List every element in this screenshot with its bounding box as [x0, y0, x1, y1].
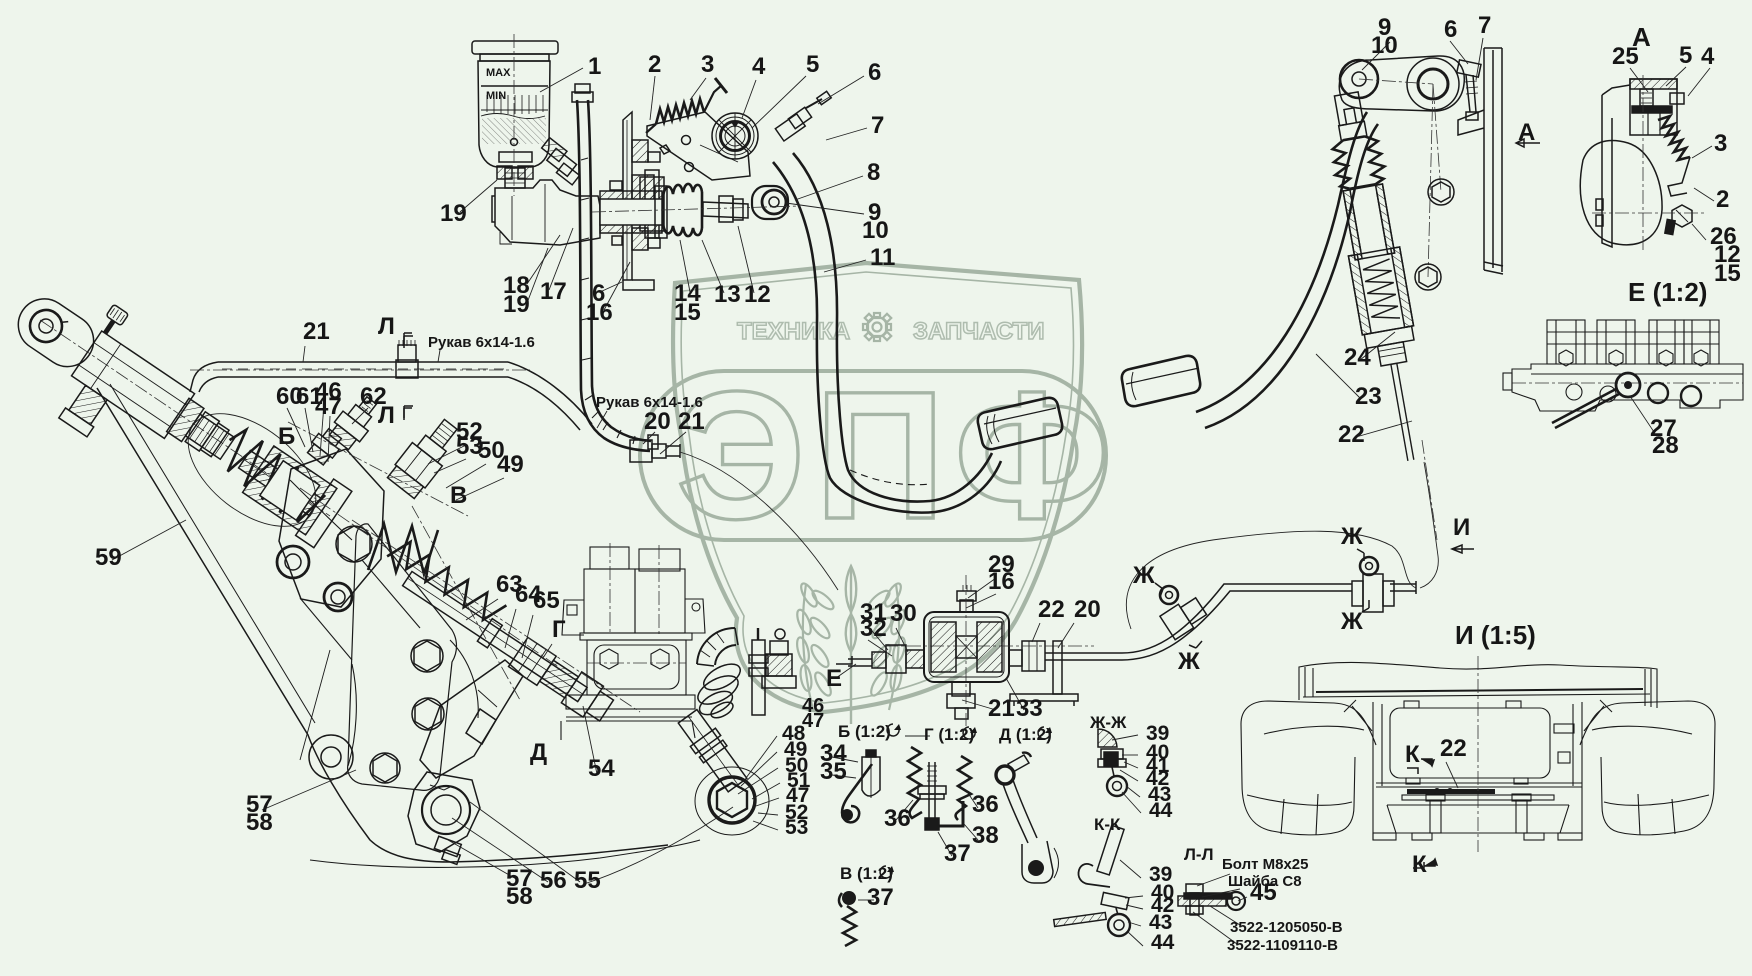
svg-text:28: 28 [1652, 432, 1679, 459]
svg-text:ТЕХНИКА: ТЕХНИКА [737, 318, 850, 345]
svg-text:MAX: MAX [486, 67, 511, 79]
svg-text:Ж: Ж [1340, 608, 1363, 635]
svg-text:22: 22 [1338, 421, 1365, 448]
svg-text:12: 12 [744, 281, 771, 308]
svg-text:49: 49 [497, 451, 524, 478]
svg-text:Е (1:2): Е (1:2) [1628, 277, 1707, 307]
svg-text:3522-1205050-В: 3522-1205050-В [1230, 919, 1343, 936]
svg-text:3: 3 [701, 51, 714, 78]
svg-text:И: И [1453, 514, 1470, 541]
svg-text:59: 59 [95, 544, 122, 571]
svg-text:Б (1:2): Б (1:2) [838, 722, 891, 741]
svg-text:65: 65 [533, 587, 560, 614]
svg-text:21: 21 [678, 408, 705, 435]
svg-text:37: 37 [867, 884, 894, 911]
svg-text:3: 3 [1714, 130, 1727, 157]
svg-text:6: 6 [1444, 16, 1457, 43]
svg-text:36: 36 [972, 791, 999, 818]
svg-text:15: 15 [1714, 260, 1741, 287]
svg-text:Ж: Ж [1177, 648, 1200, 675]
svg-text:13: 13 [714, 281, 741, 308]
svg-text:1: 1 [588, 53, 601, 80]
svg-text:К: К [1405, 741, 1420, 768]
svg-text:16: 16 [586, 299, 613, 326]
svg-text:21: 21 [303, 318, 330, 345]
svg-text:Г: Г [552, 616, 566, 643]
svg-text:7: 7 [871, 112, 884, 139]
svg-text:47: 47 [802, 710, 824, 732]
svg-text:2: 2 [648, 51, 661, 78]
svg-text:5: 5 [1679, 42, 1692, 69]
svg-text:35: 35 [820, 758, 847, 785]
svg-text:Ж: Ж [1340, 523, 1363, 550]
svg-text:44: 44 [1149, 799, 1173, 822]
svg-text:Ж: Ж [1132, 562, 1155, 589]
svg-text:Рукав 6х14-1.6: Рукав 6х14-1.6 [428, 334, 535, 351]
svg-text:3522-1109110-В: 3522-1109110-В [1227, 937, 1338, 954]
svg-text:Л: Л [378, 313, 395, 340]
svg-text:10: 10 [862, 217, 889, 244]
svg-text:Болт М8х25: Болт М8х25 [1222, 856, 1308, 873]
svg-text:5: 5 [806, 51, 819, 78]
svg-text:23: 23 [1355, 383, 1382, 410]
svg-text:10: 10 [1371, 32, 1398, 59]
svg-text:Б: Б [278, 423, 295, 450]
svg-text:33: 33 [1016, 695, 1043, 722]
svg-text:ЭПФ: ЭПФ [676, 353, 1119, 557]
svg-text:В: В [450, 482, 467, 509]
svg-text:58: 58 [506, 883, 533, 910]
svg-text:16: 16 [988, 568, 1015, 595]
svg-text:58: 58 [246, 809, 273, 836]
svg-text:Шайба С8: Шайба С8 [1228, 873, 1302, 890]
svg-text:ЗАПЧАСТИ: ЗАПЧАСТИ [913, 318, 1045, 345]
svg-text:20: 20 [644, 408, 671, 435]
svg-text:53: 53 [785, 816, 808, 839]
svg-text:38: 38 [972, 822, 999, 849]
svg-text:К-К: К-К [1094, 815, 1121, 834]
svg-text:4: 4 [1701, 43, 1715, 70]
svg-text:И (1:5): И (1:5) [1455, 620, 1536, 650]
svg-text:Е: Е [826, 665, 842, 692]
svg-text:Л-Л: Л-Л [1184, 845, 1214, 864]
svg-text:20: 20 [1074, 596, 1101, 623]
svg-text:17: 17 [540, 278, 567, 305]
svg-text:Л: Л [378, 402, 395, 429]
svg-text:А: А [1518, 119, 1535, 146]
svg-text:15: 15 [674, 299, 701, 326]
svg-text:21: 21 [988, 695, 1015, 722]
svg-text:47: 47 [315, 393, 342, 420]
svg-text:19: 19 [440, 200, 467, 227]
svg-text:4: 4 [752, 53, 766, 80]
svg-text:Рукав 6х14-1.6: Рукав 6х14-1.6 [596, 394, 703, 411]
svg-text:Ж-Ж: Ж-Ж [1089, 713, 1127, 732]
svg-text:19: 19 [503, 291, 530, 318]
svg-text:22: 22 [1440, 735, 1467, 762]
svg-text:Д: Д [530, 739, 547, 766]
svg-text:24: 24 [1344, 344, 1371, 371]
svg-text:А: А [1632, 22, 1651, 52]
svg-text:7: 7 [1478, 12, 1491, 39]
svg-text:Д (1:2): Д (1:2) [999, 725, 1052, 744]
svg-text:MIN: MIN [486, 90, 506, 102]
svg-text:37: 37 [944, 840, 971, 867]
svg-text:36: 36 [884, 805, 911, 832]
svg-text:22: 22 [1038, 596, 1065, 623]
svg-text:11: 11 [870, 244, 895, 271]
svg-text:6: 6 [868, 59, 881, 86]
svg-text:44: 44 [1151, 931, 1175, 954]
svg-text:8: 8 [867, 159, 880, 186]
svg-text:32: 32 [860, 615, 887, 642]
svg-text:55: 55 [574, 867, 601, 894]
svg-text:2: 2 [1716, 186, 1729, 213]
svg-text:54: 54 [588, 755, 615, 782]
svg-text:56: 56 [540, 867, 567, 894]
svg-text:30: 30 [890, 600, 917, 627]
